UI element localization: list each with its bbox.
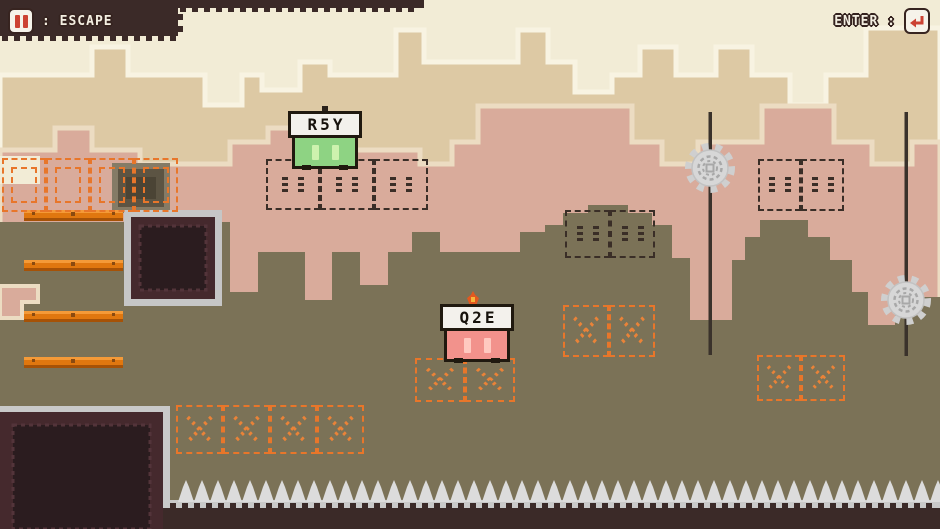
x-pattern bbox=[225, 407, 268, 452]
x-pattern bbox=[272, 407, 315, 452]
ghost-block-dark bbox=[801, 159, 844, 211]
player-r5y: R5Y bbox=[288, 111, 362, 169]
ghost-block-orange bbox=[801, 355, 845, 401]
antenna-dot bbox=[322, 106, 328, 111]
level-background bbox=[0, 0, 940, 529]
player-eye bbox=[464, 338, 471, 353]
ghost-block-orange bbox=[90, 158, 134, 212]
ghost-block-orange bbox=[563, 305, 609, 357]
ghost-block-dark bbox=[758, 159, 801, 211]
enter-label: ENTER : bbox=[834, 14, 896, 29]
player-name-tag: Q2E bbox=[440, 304, 514, 331]
x-pattern bbox=[759, 357, 799, 399]
ghost-block-orange bbox=[176, 405, 223, 454]
hud-escape-hint: : ESCAPE bbox=[8, 8, 113, 34]
ghost-block-orange bbox=[317, 405, 364, 454]
escape-label: : ESCAPE bbox=[42, 14, 113, 29]
ghost-block-dark bbox=[565, 210, 610, 258]
x-pattern bbox=[611, 307, 653, 355]
return-icon[interactable] bbox=[904, 8, 930, 34]
x-pattern bbox=[803, 357, 843, 399]
ghost-block-orange bbox=[270, 405, 317, 454]
game-viewport: R5Y Q2E : ESCAPE ENTER : bbox=[0, 0, 940, 529]
ghost-block-orange bbox=[465, 358, 515, 402]
player-eye bbox=[332, 145, 339, 160]
platform bbox=[24, 357, 123, 368]
big-framed-box bbox=[124, 210, 222, 306]
ghost-block-dark bbox=[610, 210, 655, 258]
platform bbox=[24, 260, 123, 271]
ghost-block-orange bbox=[46, 158, 90, 212]
x-pattern bbox=[319, 407, 362, 452]
player-foot bbox=[302, 165, 311, 170]
pause-icon[interactable] bbox=[8, 8, 34, 34]
player-eye bbox=[312, 145, 319, 160]
platform bbox=[24, 311, 123, 322]
player-eye bbox=[484, 338, 491, 353]
ghost-block-orange bbox=[609, 305, 655, 357]
bottom-left-box bbox=[0, 406, 170, 529]
x-pattern bbox=[467, 360, 513, 400]
ghost-block-orange bbox=[2, 158, 46, 212]
player-foot bbox=[454, 358, 463, 363]
player-name-tag: R5Y bbox=[288, 111, 362, 138]
x-pattern bbox=[565, 307, 607, 355]
player-foot bbox=[491, 358, 500, 363]
ghost-block-dark bbox=[374, 159, 428, 210]
ghost-block-orange bbox=[415, 358, 465, 402]
floor-dark-strip bbox=[163, 508, 940, 529]
player-foot bbox=[339, 165, 348, 170]
player-body bbox=[292, 138, 358, 169]
ghost-block-orange bbox=[223, 405, 270, 454]
player-q2e: Q2E bbox=[440, 304, 514, 362]
top-strip bbox=[178, 0, 424, 8]
x-pattern bbox=[178, 407, 221, 452]
player-body bbox=[444, 331, 510, 362]
ghost-block-orange bbox=[757, 355, 801, 401]
x-pattern bbox=[417, 360, 463, 400]
hud-enter-hint: ENTER : bbox=[834, 8, 930, 34]
ghost-block-orange bbox=[134, 158, 178, 212]
